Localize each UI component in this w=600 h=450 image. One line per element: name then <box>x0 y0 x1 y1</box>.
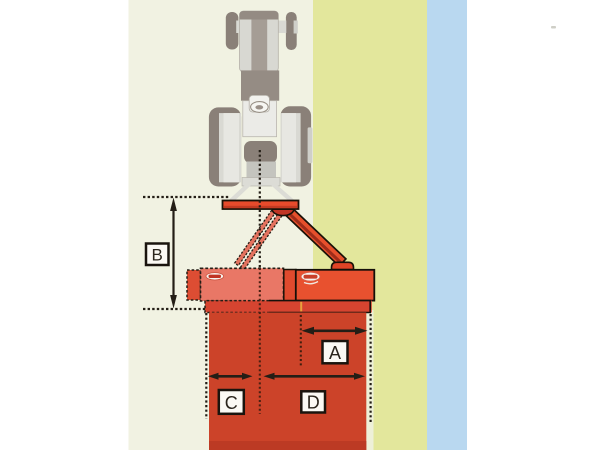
svg-text:D: D <box>307 393 320 413</box>
svg-text:B: B <box>152 246 163 265</box>
svg-text:A: A <box>329 343 341 363</box>
svg-text:C: C <box>225 393 238 413</box>
